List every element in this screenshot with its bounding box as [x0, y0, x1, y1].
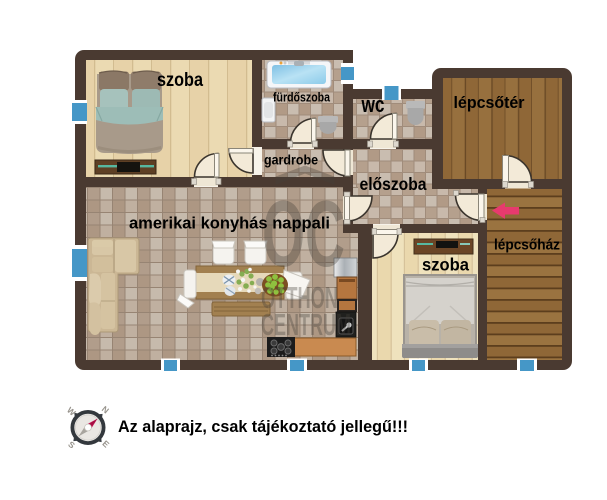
svg-text:lépcsőtér: lépcsőtér [454, 94, 526, 112]
svg-text:N: N [100, 404, 111, 416]
svg-text:OC: OC [262, 181, 345, 286]
svg-text:szoba: szoba [157, 70, 203, 91]
svg-text:E: E [100, 438, 111, 449]
svg-text:gardrobe: gardrobe [264, 153, 318, 168]
svg-text:amerikai konyhás nappali: amerikai konyhás nappali [129, 214, 330, 233]
svg-text:S: S [66, 439, 77, 451]
svg-text:Az alaprajz, csak tájékoztató: Az alaprajz, csak tájékoztató jellegű!!! [118, 417, 408, 436]
svg-text:wc: wc [361, 92, 385, 117]
svg-text:lépcsőház: lépcsőház [494, 237, 560, 254]
svg-text:szoba: szoba [422, 255, 469, 275]
svg-text:fürdőszoba: fürdőszoba [273, 91, 331, 105]
svg-text:CENTRUM: CENTRUM [261, 307, 351, 342]
svg-text:előszoba: előszoba [360, 174, 427, 194]
